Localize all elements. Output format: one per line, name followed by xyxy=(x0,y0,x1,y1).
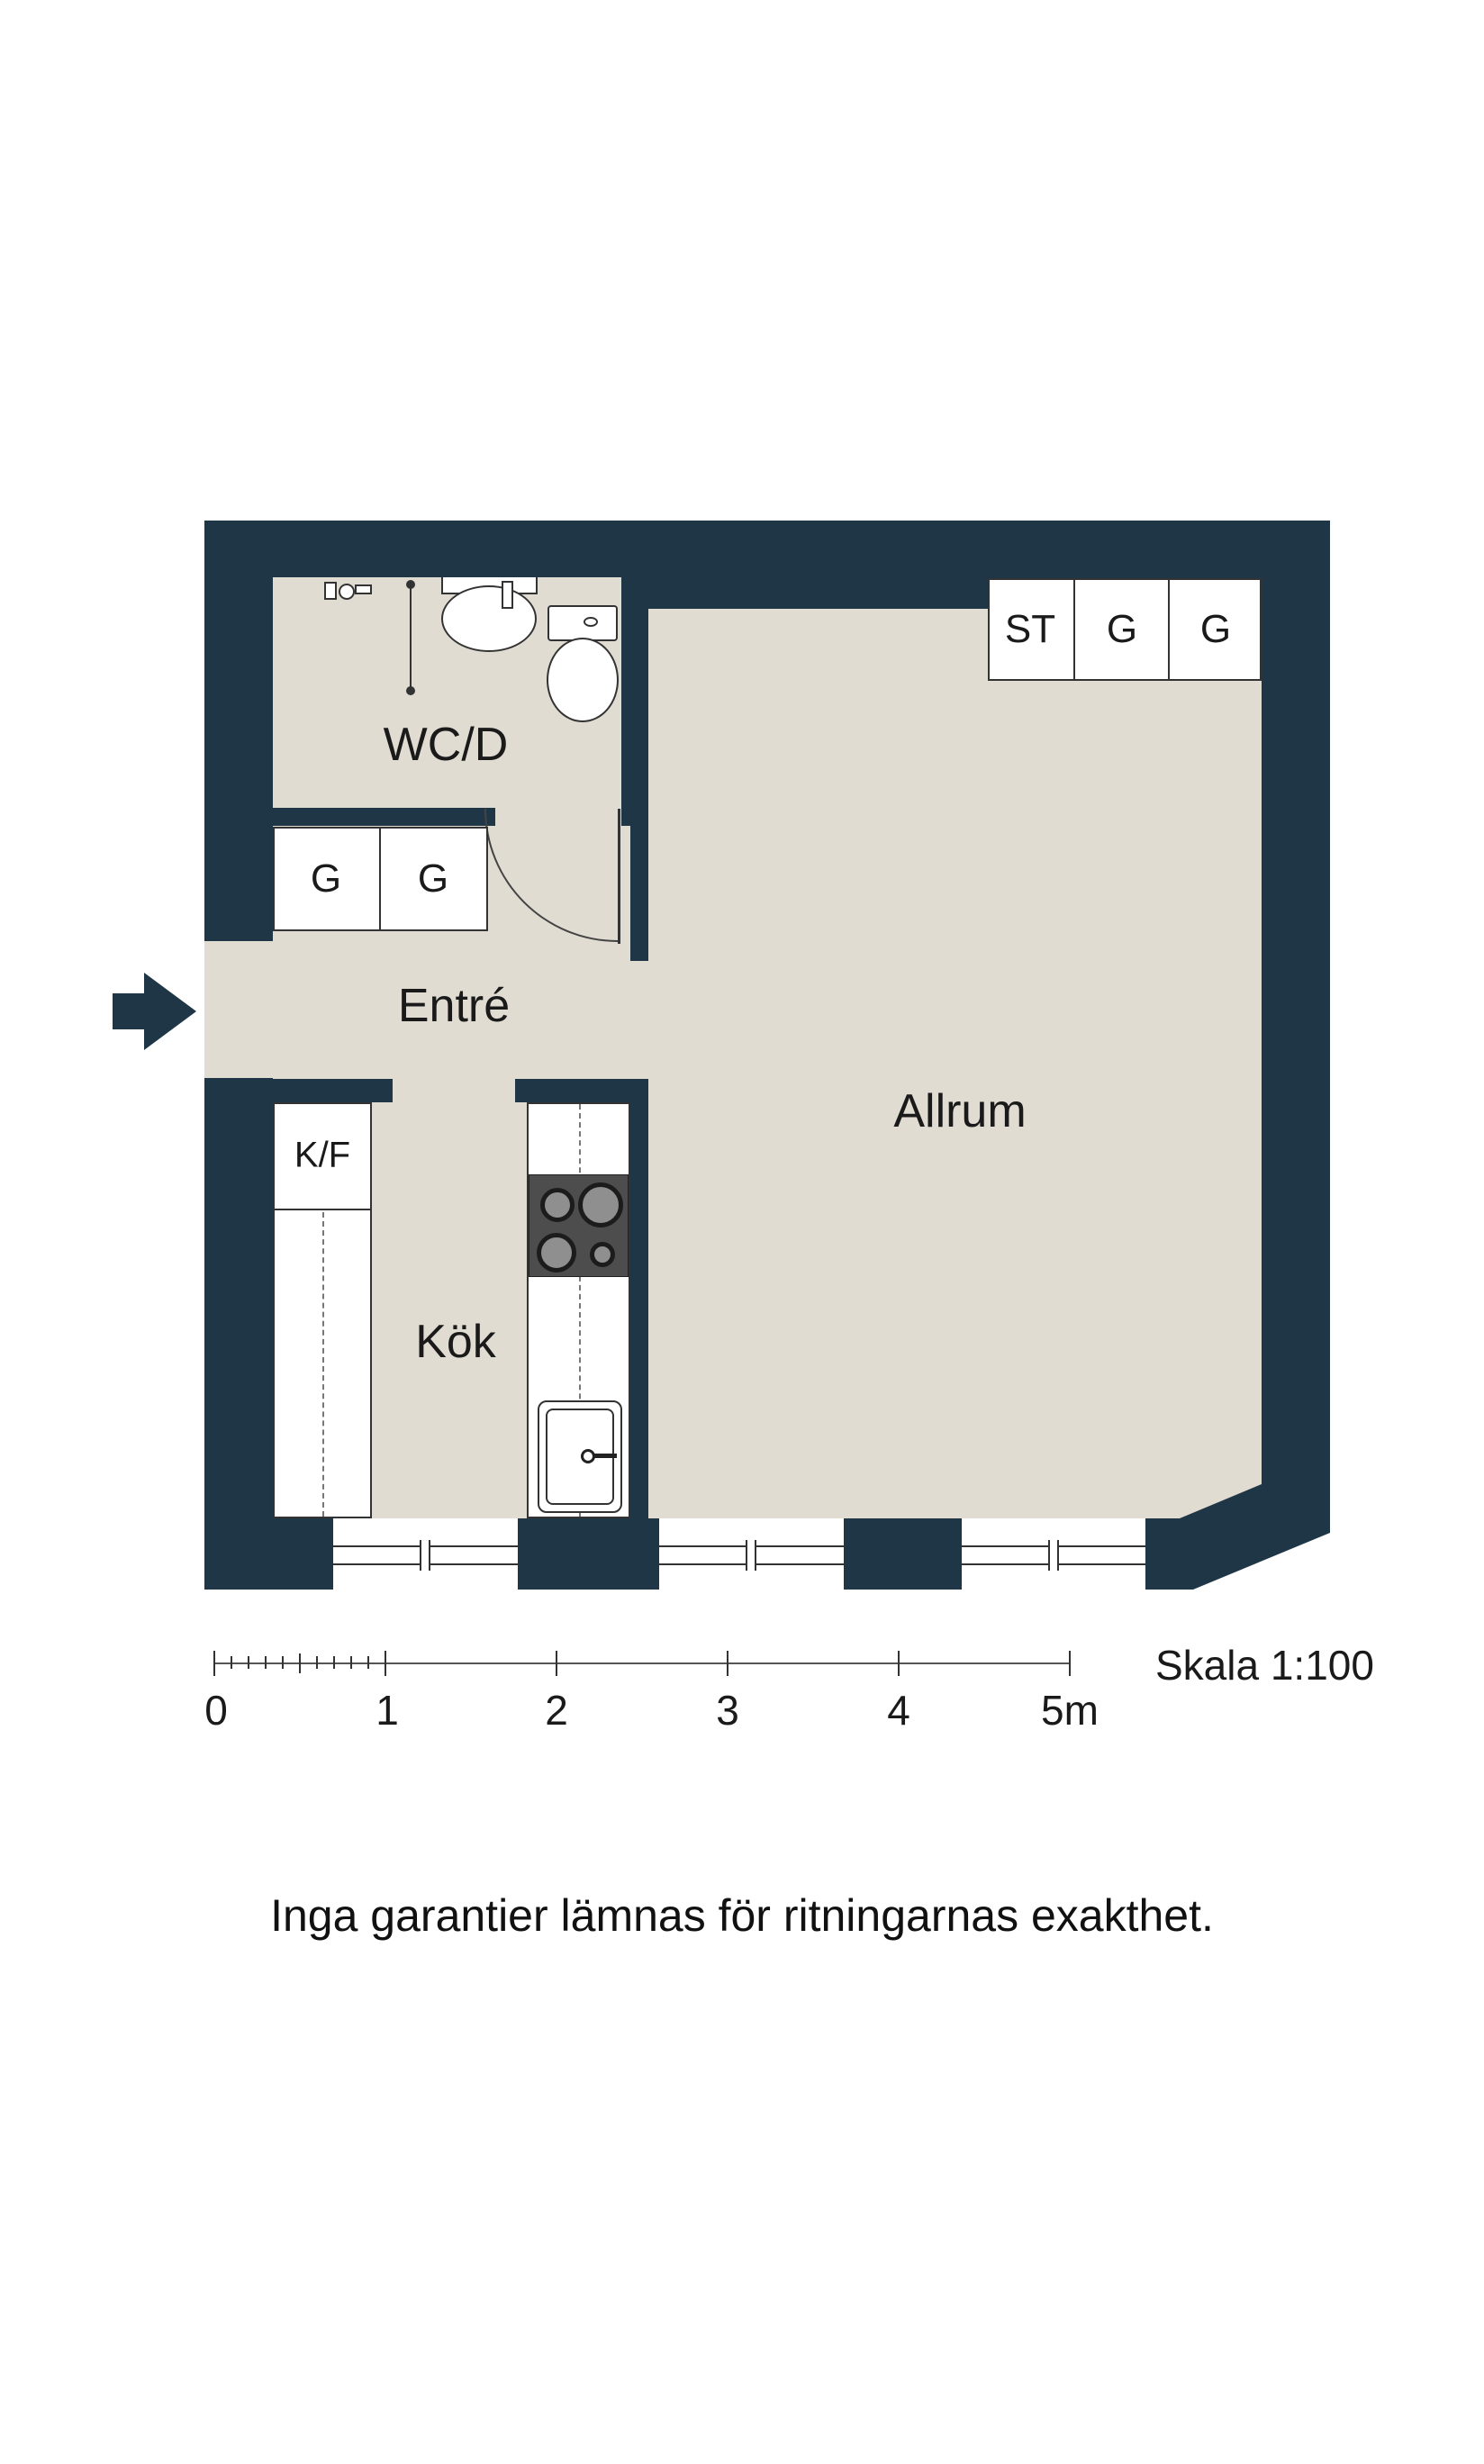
closet-label-g: G xyxy=(1107,607,1137,652)
shower-rail-icon xyxy=(410,584,412,690)
kok-door-opening xyxy=(393,1079,515,1102)
window xyxy=(333,1518,518,1590)
closet-label-g: G xyxy=(418,856,448,901)
room-label-entre: Entré xyxy=(398,979,510,1033)
scale-tick-label: 2 xyxy=(545,1686,568,1735)
scale-tick-label: 3 xyxy=(716,1686,739,1735)
stove-icon xyxy=(529,1174,629,1277)
toilet-bowl-icon xyxy=(547,638,619,722)
window xyxy=(962,1518,1145,1590)
room-label-kok: Kök xyxy=(415,1315,496,1369)
closet-label-g: G xyxy=(311,856,341,901)
washer-tap-icon xyxy=(355,584,372,594)
scale-tick-label: 5m xyxy=(1041,1686,1099,1735)
washbasin-bowl-icon xyxy=(441,585,537,652)
shower-rail-end-icon xyxy=(406,580,415,589)
floor-plan-page: G G ST G G K/F WC/D Entré Kök Allrum xyxy=(0,0,1484,2464)
room-allrum-floor xyxy=(648,609,1262,1518)
entrance-opening xyxy=(204,941,273,1078)
scale-title: Skala 1:100 xyxy=(1155,1641,1374,1689)
washbasin-tap-icon xyxy=(502,581,513,609)
cabinet-label-kf: K/F xyxy=(294,1136,350,1176)
closet-label-g: G xyxy=(1200,607,1231,652)
kitchen-sink-icon xyxy=(538,1400,622,1513)
toilet-cistern-icon xyxy=(547,605,618,641)
window xyxy=(659,1518,844,1590)
closet-label-st: ST xyxy=(1005,607,1055,652)
room-label-allrum: Allrum xyxy=(893,1084,1026,1138)
shower-rail-end-icon xyxy=(406,686,415,695)
scale-tick-label: 1 xyxy=(376,1686,399,1735)
entrance-arrow-icon xyxy=(113,973,196,1050)
washer-connection-icon xyxy=(324,582,337,600)
disclaimer-text: Inga garantier lämnas för ritningarnas e… xyxy=(0,1889,1484,1942)
entre-closets xyxy=(273,827,488,931)
scale-tick-label: 0 xyxy=(204,1686,228,1735)
room-label-wcd: WC/D xyxy=(384,718,509,772)
entre-allrum-passage xyxy=(630,961,648,1079)
scale-tick-label: 4 xyxy=(887,1686,910,1735)
washer-valve-icon xyxy=(339,584,355,600)
door-leaf xyxy=(618,809,620,944)
toilet-button-icon xyxy=(584,617,598,627)
